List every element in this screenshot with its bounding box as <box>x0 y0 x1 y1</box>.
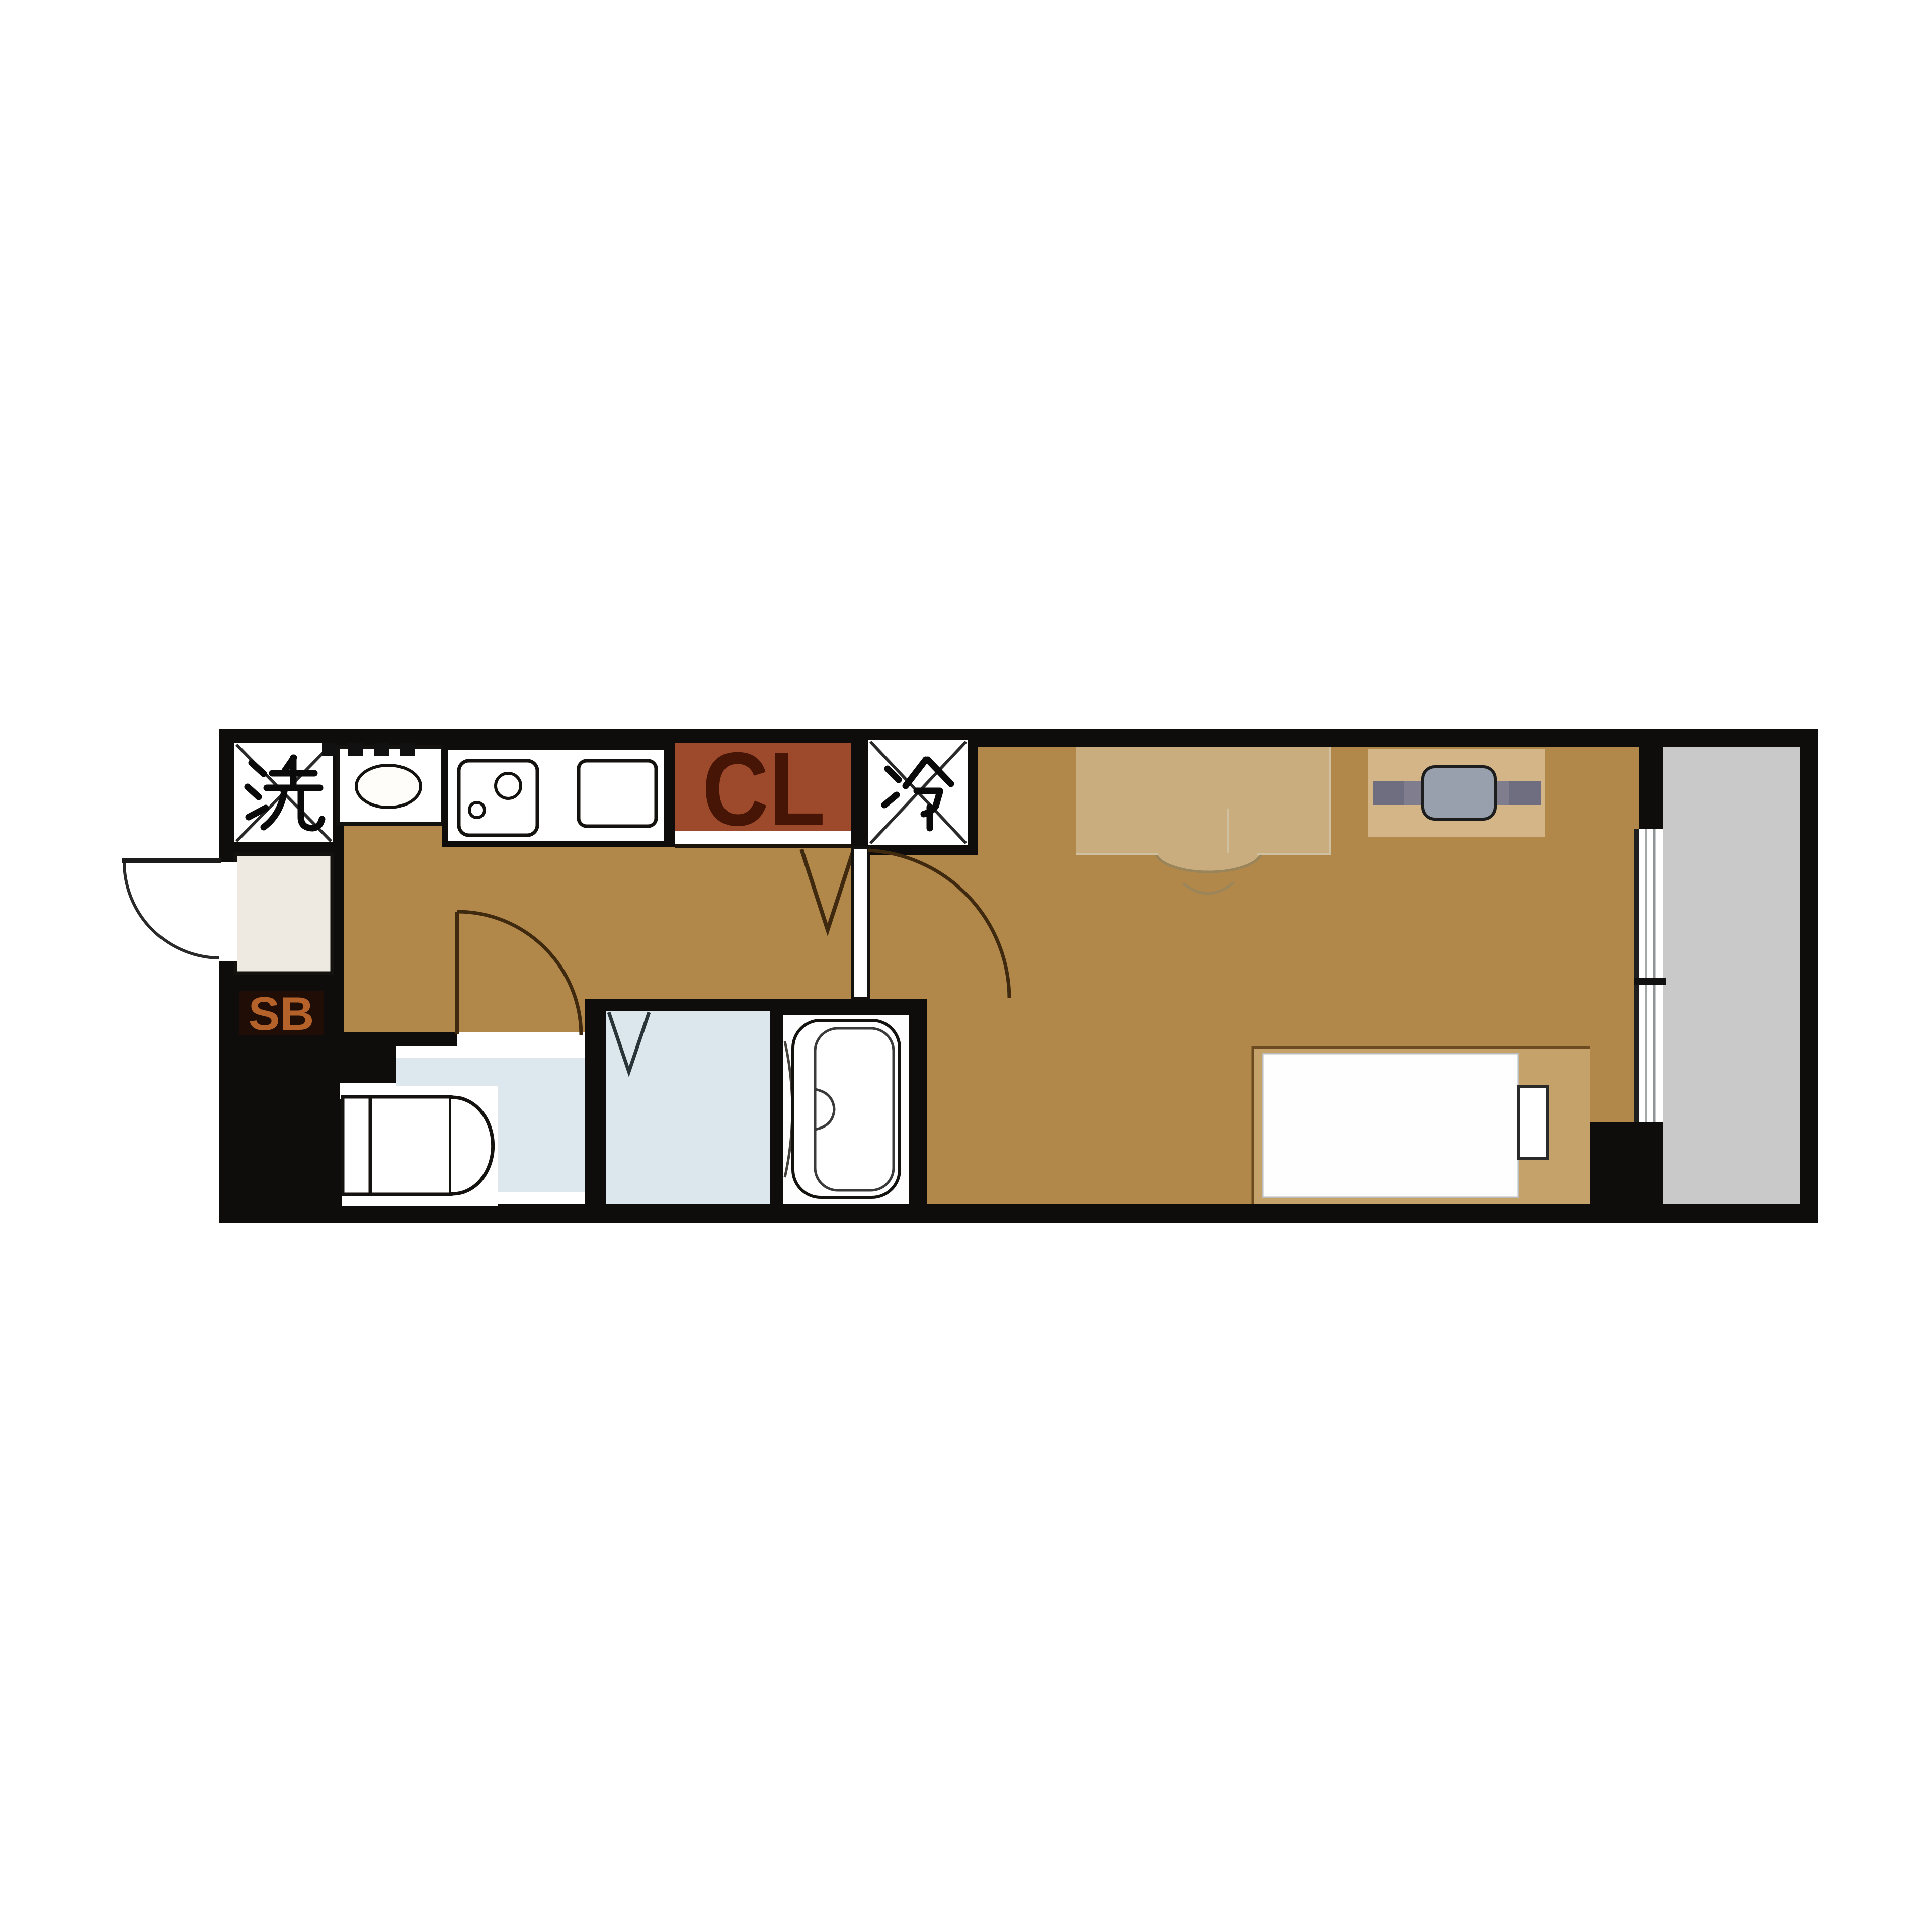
svg-text:SB: SB <box>249 987 314 1040</box>
svg-text:CL: CL <box>702 731 826 848</box>
